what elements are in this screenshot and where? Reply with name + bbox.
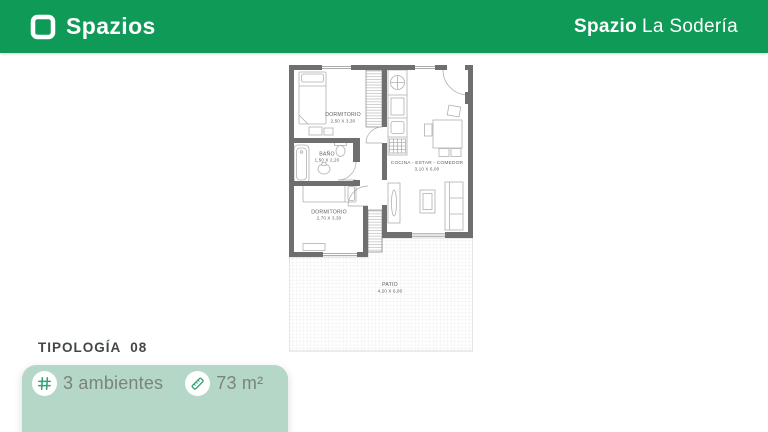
typology-card[interactable]: 3 ambientes 73 m²	[22, 365, 288, 432]
room-label-patio: PATIO	[382, 282, 398, 288]
floorplan: DORMITORIO 2,50 X 3,30 BAÑO 1,50 X 2,20 …	[289, 64, 473, 352]
project-title-bold: Spazio	[574, 16, 637, 37]
project-title-rest: La Sodería	[642, 16, 738, 37]
brand-logo-icon	[30, 14, 56, 40]
room-dims-bano: 1,50 X 2,20	[315, 158, 340, 163]
header-bar: Spazios SpazioLa Sodería	[0, 0, 768, 53]
room-dims-dormitorio-2: 2,70 X 3,30	[317, 216, 342, 221]
area-item: 73 m²	[185, 371, 263, 396]
brand: Spazios	[30, 13, 156, 40]
project-title: SpazioLa Sodería	[574, 16, 738, 38]
room-label-dormitorio-1: DORMITORIO	[325, 112, 361, 118]
room-dims-dormitorio-1: 2,50 X 3,30	[331, 119, 356, 124]
room-dims-cocina-estar-comedor: 3,10 X 6,00	[415, 167, 440, 172]
brand-name: Spazios	[66, 13, 156, 40]
room-label-bano: BAÑO	[319, 151, 335, 158]
rooms-label: 3 ambientes	[63, 373, 163, 394]
room-label-cocina-estar-comedor: COCINA - ESTAR - COMEDOR	[391, 160, 464, 166]
area-icon-circle	[185, 371, 210, 396]
page: Spazios SpazioLa Sodería	[0, 0, 768, 432]
ruler-icon	[189, 375, 206, 392]
closets	[366, 70, 382, 252]
area-label: 73 m²	[216, 373, 263, 394]
rooms-item: 3 ambientes	[32, 371, 163, 396]
rooms-icon-circle	[32, 371, 57, 396]
typology-heading: TIPOLOGÍA 08	[38, 340, 147, 355]
room-dims-patio: 4,20 X 6,00	[378, 289, 403, 294]
grid-hash-icon	[36, 375, 53, 392]
